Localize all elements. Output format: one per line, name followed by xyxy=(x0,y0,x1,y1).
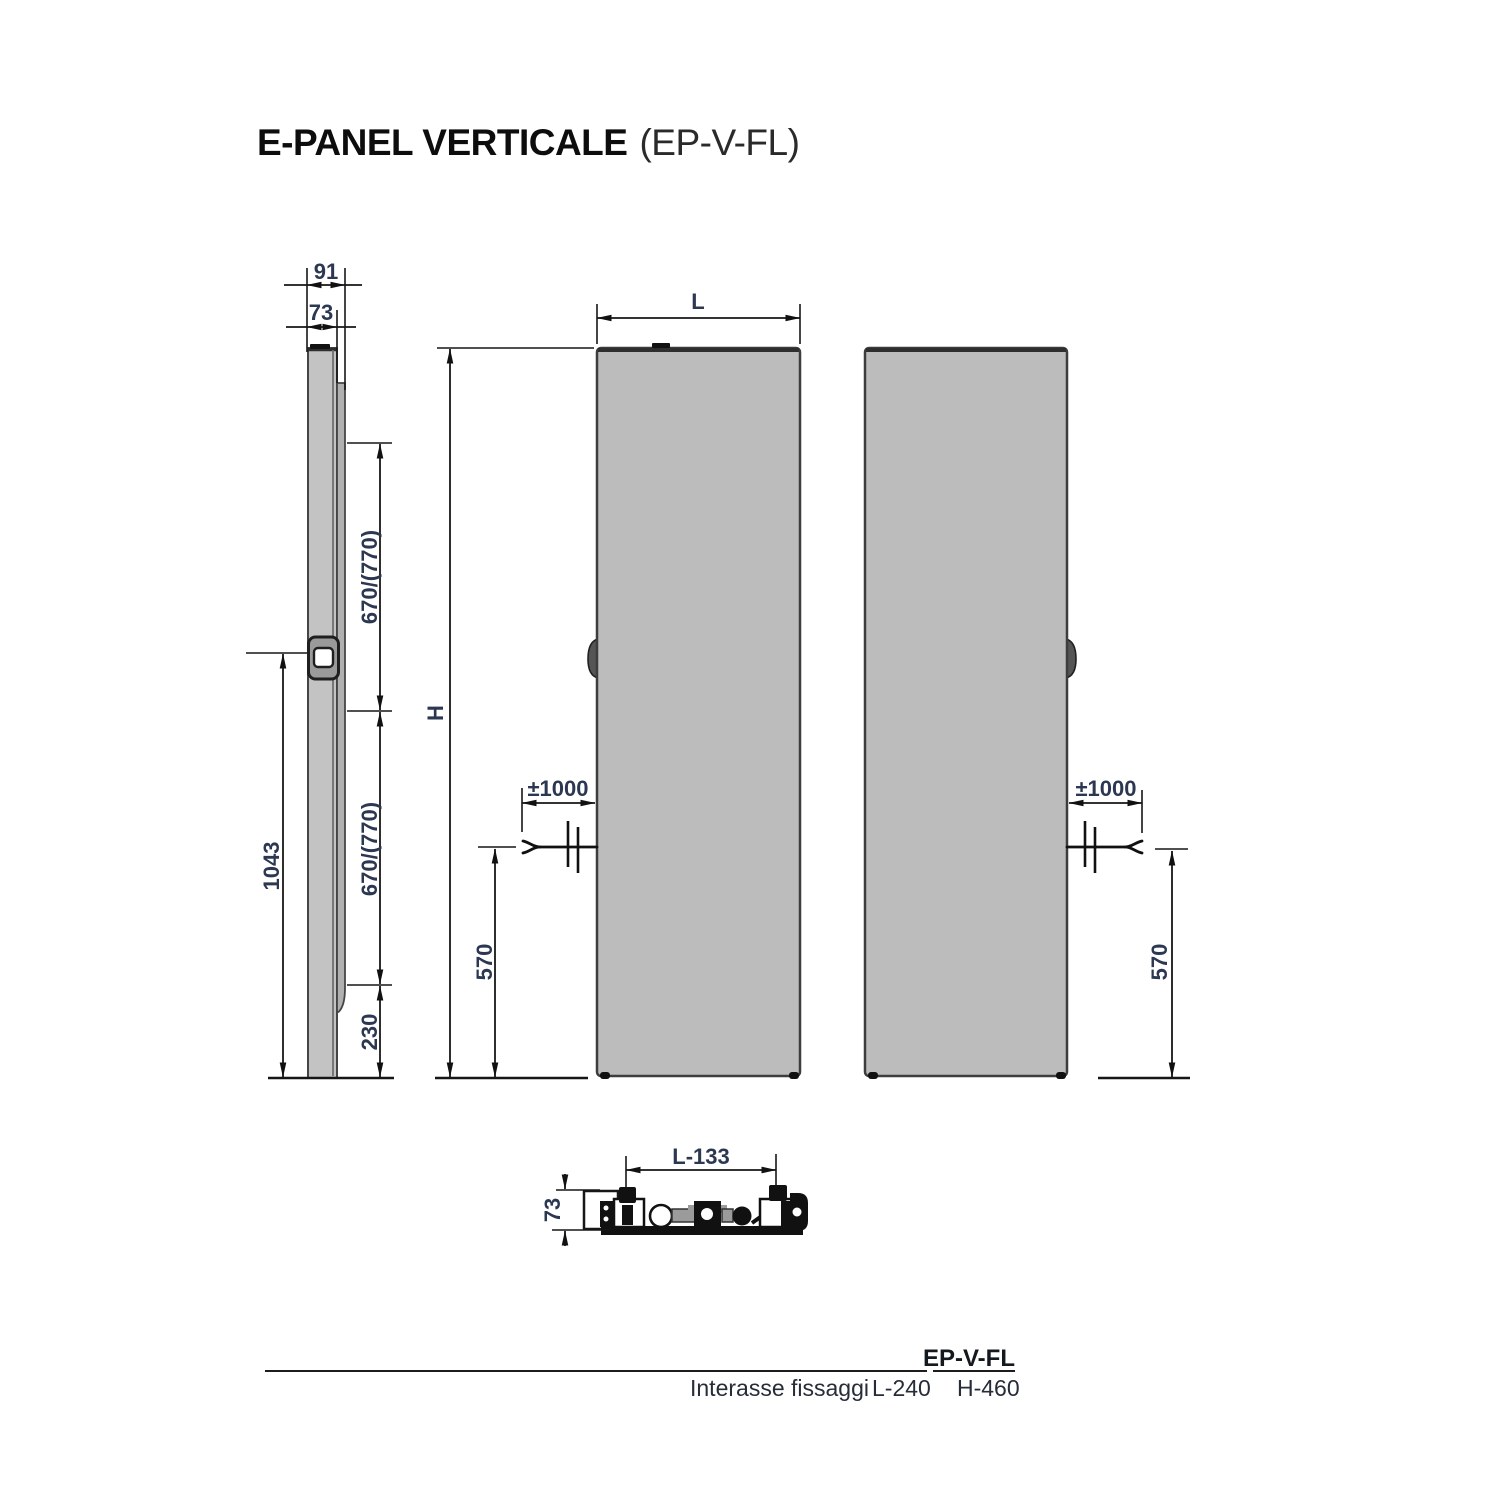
table-rule xyxy=(933,1370,1015,1372)
dim-label-fixing-span: L-133 xyxy=(672,1144,729,1169)
dim-label-bracket-height: 1043 xyxy=(259,842,284,891)
dim-label-cable-length: ±1000 xyxy=(1075,776,1136,801)
component-detail xyxy=(688,1205,694,1213)
dim-label-upper-span: 670/(770) xyxy=(357,530,382,624)
dim-label-rear-bottom-gap: 230 xyxy=(357,1014,382,1051)
spec-table-h-spacing: H-460 xyxy=(957,1375,1020,1402)
spec-table-l-spacing: L-240 xyxy=(872,1375,931,1402)
top-view: L-133 73 xyxy=(540,1144,808,1246)
radiator-dimension-drawing: 91 73 670/(770) 670/(770) 230 1043 xyxy=(0,0,1500,1500)
technical-drawing-page: E-PANEL VERTICALE(EP-V-FL) xyxy=(0,0,1500,1500)
dim-label-cable-height: 570 xyxy=(1147,944,1172,981)
cable-plug-icon xyxy=(523,841,540,853)
foot-icon xyxy=(1056,1072,1066,1079)
component-detail xyxy=(733,1207,752,1226)
component-block xyxy=(622,1205,633,1225)
component-detail xyxy=(604,1206,609,1211)
component-block xyxy=(600,1201,613,1227)
dim-label-cable-length: ±1000 xyxy=(527,776,588,801)
fixing-knob xyxy=(769,1185,787,1201)
dim-label-total-depth: 91 xyxy=(314,259,338,284)
fixing-knob xyxy=(619,1187,636,1203)
rear-channel xyxy=(337,383,345,1012)
dim-label-width: L xyxy=(691,289,704,314)
spec-table-row-label: Interasse fissaggi xyxy=(690,1375,869,1402)
foot-icon xyxy=(789,1072,799,1079)
pipe-section-icon xyxy=(650,1205,672,1227)
side-view: 91 73 670/(770) 670/(770) 230 1043 xyxy=(246,259,394,1078)
dim-label-depth: 73 xyxy=(540,1198,565,1222)
dim-label-height: H xyxy=(423,705,448,721)
dim-label-front-depth: 73 xyxy=(309,300,333,325)
rear-panel-body xyxy=(865,348,1067,1076)
front-view: L H ±1000 570 xyxy=(423,289,800,1079)
dim-label-cable-height: 570 xyxy=(472,944,497,981)
foot-icon xyxy=(600,1072,610,1079)
component-block xyxy=(722,1209,733,1222)
cable-plug-icon xyxy=(1125,841,1142,853)
component-detail xyxy=(604,1217,609,1222)
rear-view: ±1000 570 xyxy=(865,348,1190,1079)
spec-table-model: EP-V-FL xyxy=(905,1345,1015,1373)
wall-bracket-window xyxy=(314,648,333,667)
top-cap-icon xyxy=(652,343,670,348)
top-cap-icon xyxy=(310,344,330,349)
foot-icon xyxy=(868,1072,878,1079)
component-detail xyxy=(793,1208,802,1217)
front-panel-body xyxy=(597,348,800,1076)
component-detail xyxy=(701,1208,713,1220)
table-rule xyxy=(265,1370,927,1372)
dim-label-lower-span: 670/(770) xyxy=(357,802,382,896)
